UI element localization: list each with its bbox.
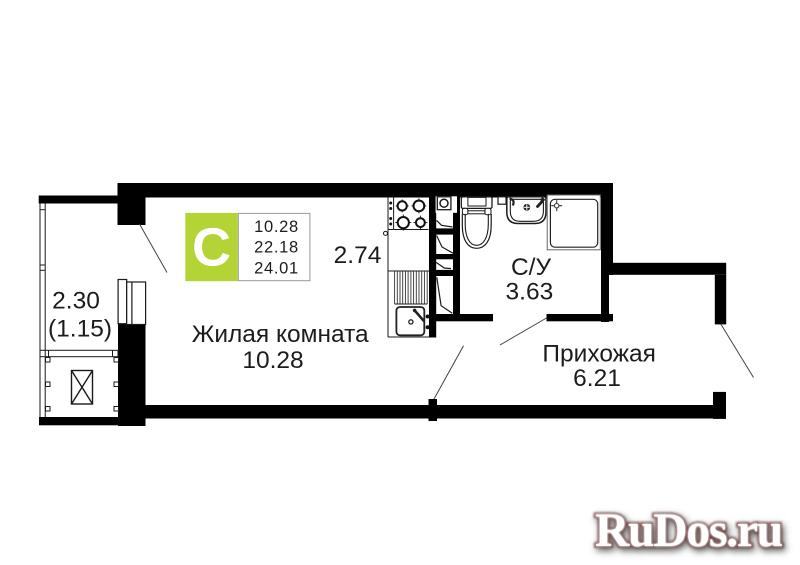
svg-text:Жилая комната: Жилая комната <box>192 321 369 348</box>
svg-text:2.74: 2.74 <box>334 242 382 269</box>
svg-text:Прихожая: Прихожая <box>542 341 656 368</box>
svg-text:3.63: 3.63 <box>506 279 554 306</box>
svg-text:RuDos.ru: RuDos.ru <box>595 505 783 557</box>
svg-text:10.28: 10.28 <box>254 218 299 236</box>
svg-text:6.21: 6.21 <box>573 365 621 392</box>
svg-text:(1.15): (1.15) <box>48 316 112 343</box>
svg-text:2.30: 2.30 <box>52 288 100 315</box>
svg-text:С: С <box>192 218 231 278</box>
svg-text:22.18: 22.18 <box>254 238 299 256</box>
svg-text:24.01: 24.01 <box>254 259 299 277</box>
svg-text:С/У: С/У <box>511 254 552 281</box>
svg-text:10.28: 10.28 <box>242 347 303 374</box>
